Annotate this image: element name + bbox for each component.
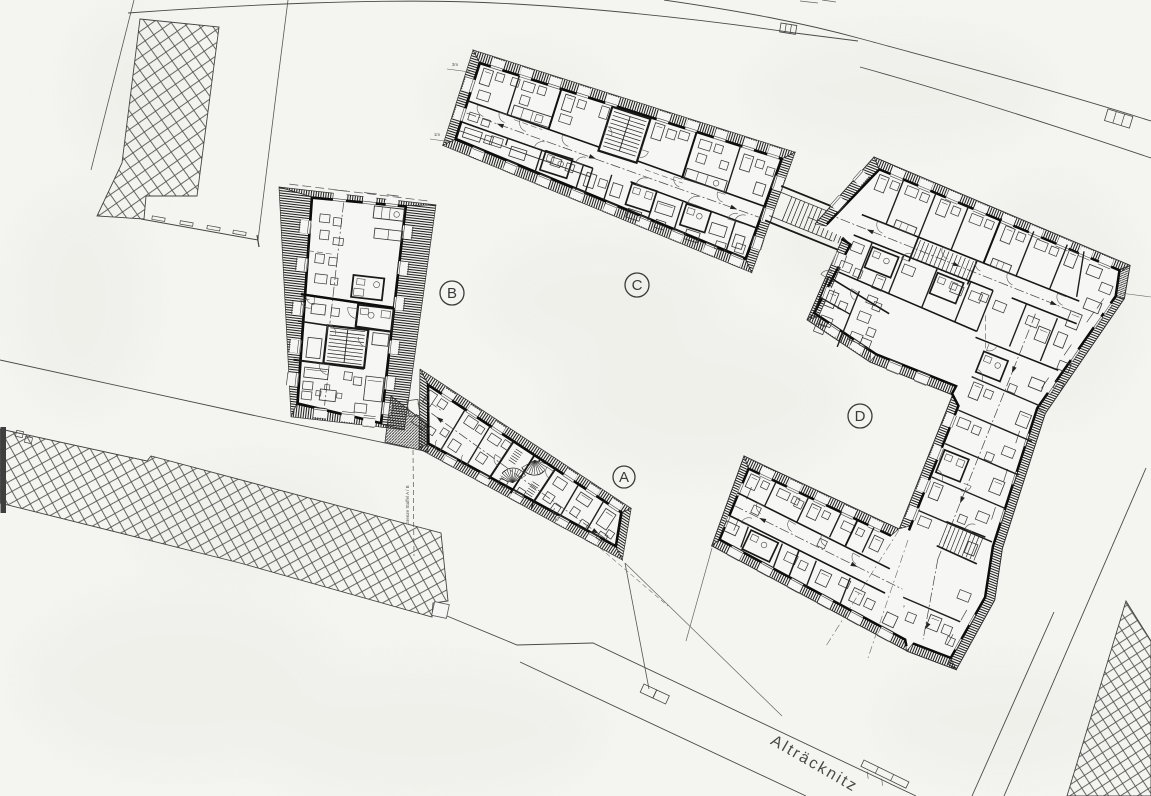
svg-text:1m: 1m	[434, 132, 441, 137]
svg-text:3m: 3m	[452, 62, 459, 67]
svg-text:C: C	[632, 277, 643, 294]
svg-text:D: D	[855, 408, 866, 425]
svg-text:B: B	[447, 285, 457, 302]
svg-text:A: A	[619, 469, 629, 486]
svg-text:Grenze Staffel A / B: Grenze Staffel A / B	[405, 485, 410, 524]
